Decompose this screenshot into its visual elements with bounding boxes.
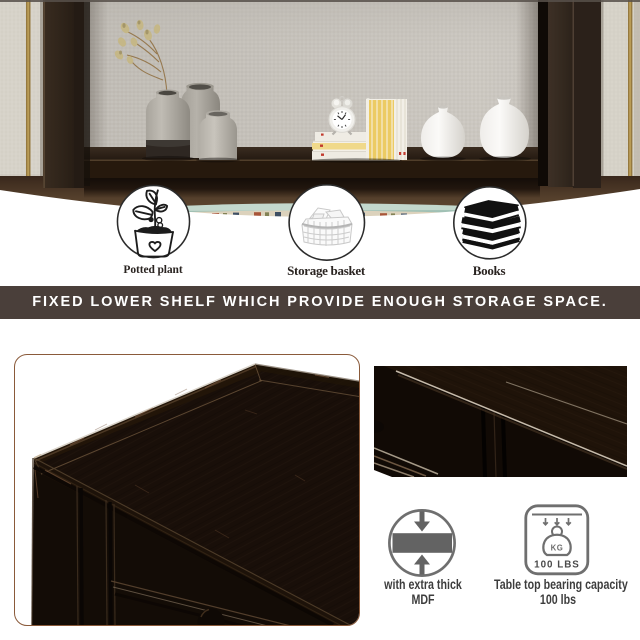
svg-text:KG: KG	[551, 544, 564, 553]
svg-text:100 LBS: 100 LBS	[534, 560, 580, 571]
